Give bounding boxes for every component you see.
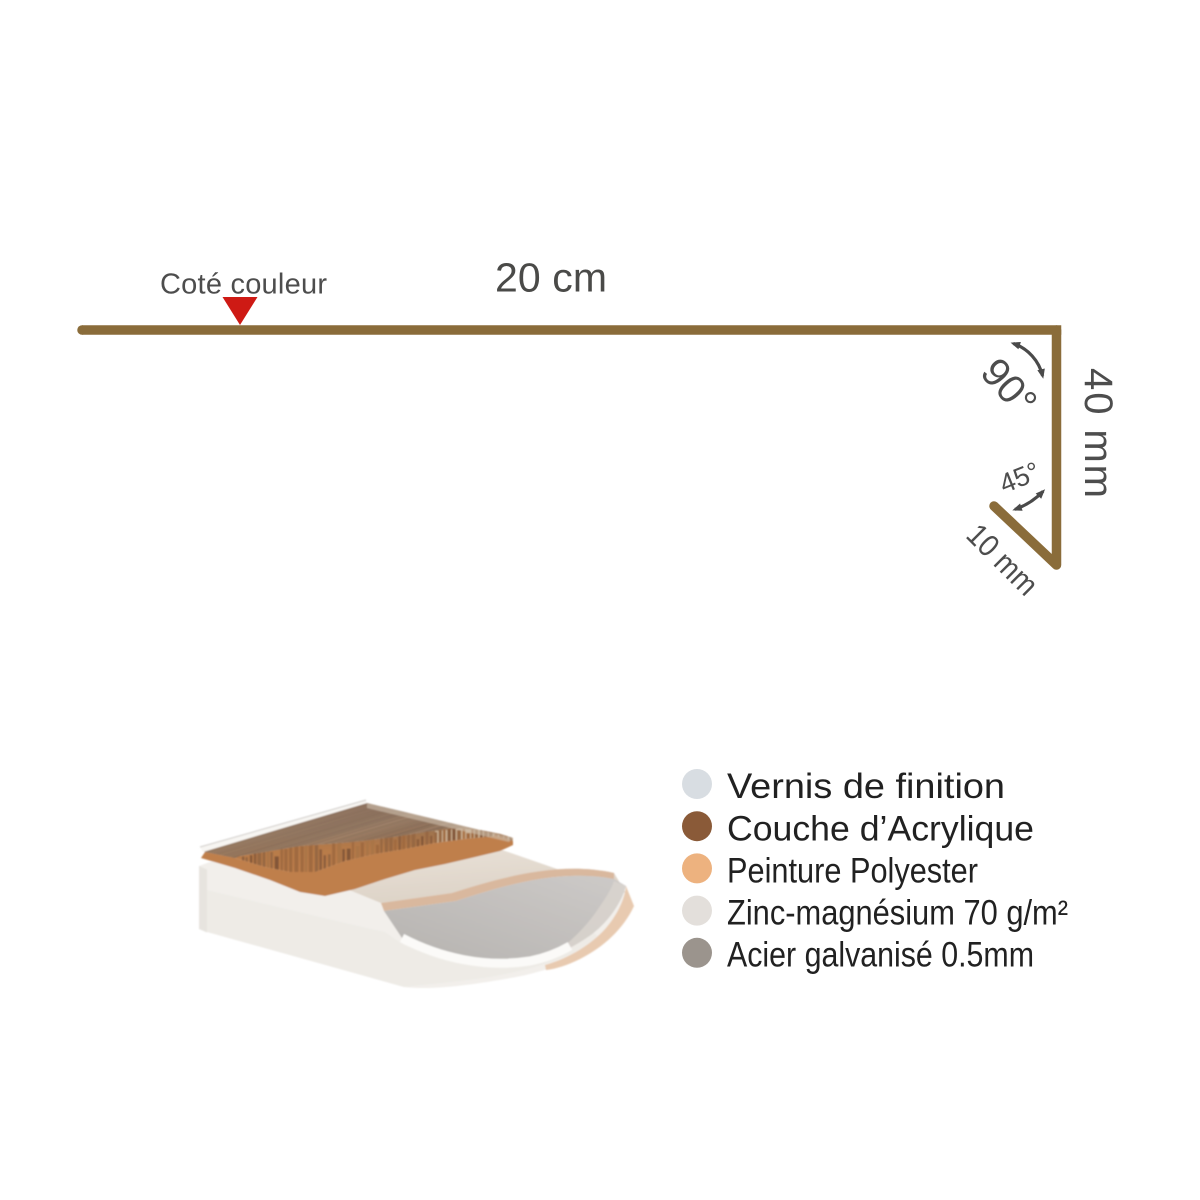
svg-text:90°: 90° — [972, 350, 1045, 424]
svg-text:Acier galvanisé 0.5mm: Acier galvanisé 0.5mm — [727, 936, 1034, 975]
svg-text:Vernis de finition: Vernis de finition — [727, 767, 1005, 806]
svg-text:Couche d’Acrylique: Couche d’Acrylique — [727, 810, 1034, 849]
svg-text:40 mm: 40 mm — [1076, 368, 1120, 498]
svg-text:Coté couleur: Coté couleur — [160, 269, 327, 301]
svg-text:10 mm: 10 mm — [960, 517, 1046, 603]
svg-text:45°: 45° — [995, 456, 1044, 499]
svg-text:20 cm: 20 cm — [495, 255, 607, 301]
svg-text:Peinture Polyester: Peinture Polyester — [727, 852, 978, 891]
svg-text:Zinc-magnésium 70 g/m²: Zinc-magnésium 70 g/m² — [727, 894, 1068, 933]
